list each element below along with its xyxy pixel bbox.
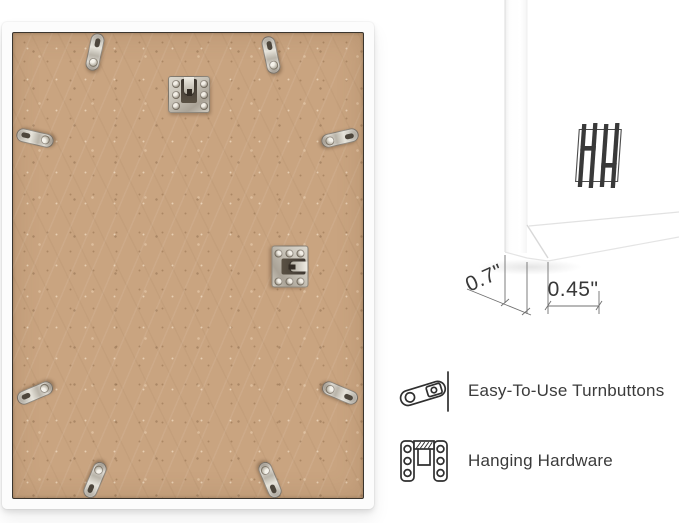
hanger-notch xyxy=(289,264,296,269)
frame-corner-body xyxy=(505,0,679,261)
hanging-hardware-icon xyxy=(399,436,449,486)
feature-item-hanging-hardware: Hanging Hardware xyxy=(396,435,613,487)
frame-side-strip xyxy=(505,0,527,253)
frame-corner-closeup: 0.7" 0.45" xyxy=(440,0,679,340)
hanging-hardware-plate xyxy=(168,76,210,113)
screw-hole xyxy=(200,91,208,99)
frame-back-photo xyxy=(2,22,374,509)
hanging-hardware-plate xyxy=(272,246,309,288)
product-image: 0.7" 0.45" Easy-To-Use Turnbuttons xyxy=(0,0,679,523)
screw-hole xyxy=(200,80,208,88)
screw-hole xyxy=(275,278,283,286)
screw-hole xyxy=(172,102,180,110)
feature-icon-box xyxy=(396,367,454,415)
screw-hole xyxy=(286,278,294,286)
screw-hole xyxy=(297,250,305,258)
face-width-dimension-label: 0.45" xyxy=(548,278,599,301)
screw-hole xyxy=(286,250,294,258)
feature-label: Easy-To-Use Turnbuttons xyxy=(468,381,664,401)
feature-item-turnbuttons: Easy-To-Use Turnbuttons xyxy=(396,365,664,417)
hanger-notch xyxy=(187,89,192,96)
feature-label: Hanging Hardware xyxy=(468,451,613,471)
screw-hole xyxy=(297,278,305,286)
screw-hole xyxy=(200,102,208,110)
feature-icon-box xyxy=(396,436,454,486)
screw-hole xyxy=(172,80,180,88)
screw-hole xyxy=(172,91,180,99)
screw-hole xyxy=(275,250,283,258)
turnbutton-icon xyxy=(396,367,454,415)
